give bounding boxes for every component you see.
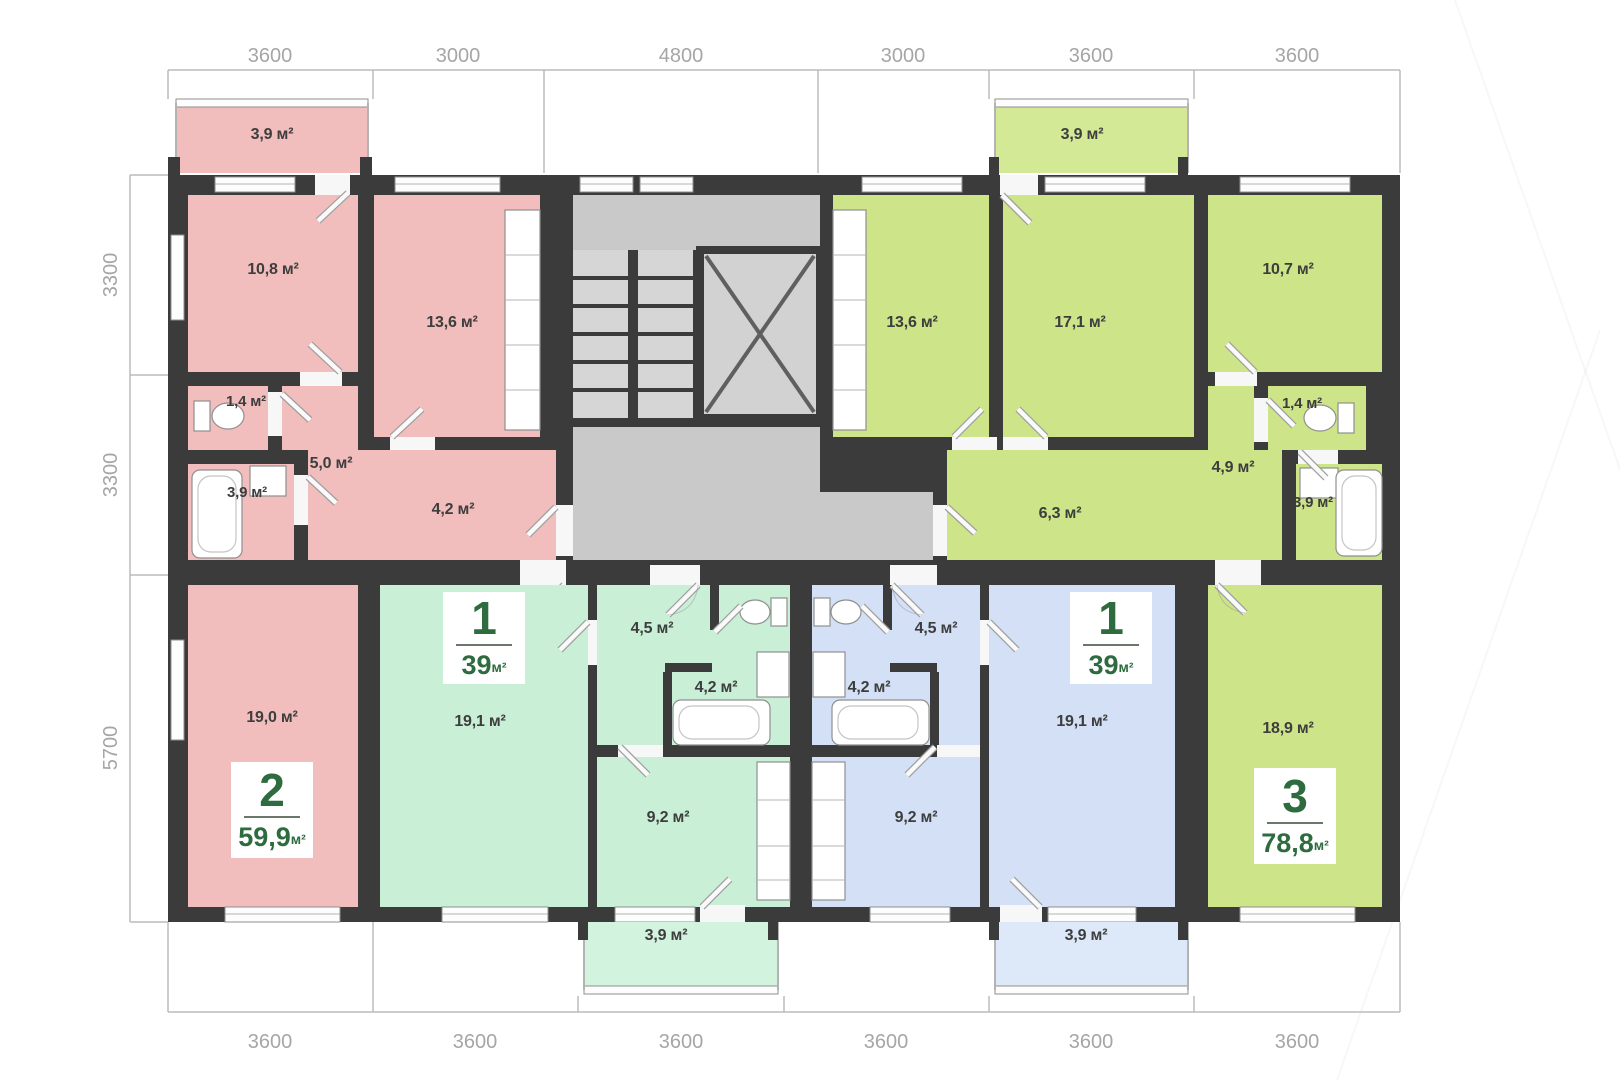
pink-kitchen-counter <box>505 210 540 430</box>
apartment-mint: 4,5 м² 4,2 м² 9,2 м² 19,1 м² 3,9 м² 1 39… <box>380 565 790 994</box>
dim-top-3: 4800 <box>659 45 704 67</box>
pink-balcony-label: 3,9 м² <box>251 126 294 143</box>
dim-bottom-4: 3600 <box>864 1031 909 1053</box>
blue-badge-area: 39 <box>1088 650 1118 680</box>
lime-corridor-label: 6,3 м² <box>1039 505 1082 522</box>
mint-badge-unit: м² <box>492 659 507 675</box>
dim-top-1: 3600 <box>248 45 293 67</box>
mint-apartment-badge: 1 39м² <box>443 592 525 684</box>
blue-badge-number: 1 <box>1098 592 1124 644</box>
pink-room-living <box>188 585 358 907</box>
dim-bottom-1: 3600 <box>248 1031 293 1053</box>
mint-balcony-label: 3,9 м² <box>645 927 688 944</box>
elevator-shaft <box>700 250 820 418</box>
mint-badge-area: 39 <box>461 650 491 680</box>
pink-wc-label: 1,4 м² <box>226 393 266 410</box>
blue-bathroom-label: 4,2 м² <box>848 679 891 696</box>
dim-bottom-5: 3600 <box>1069 1031 1114 1053</box>
blue-apartment-badge: 1 39м² <box>1070 592 1152 684</box>
dim-left-2: 3300 <box>100 453 122 498</box>
dim-bottom-6: 3600 <box>1275 1031 1320 1053</box>
floor-plan-drawing: 3600 3000 4800 3000 3600 3600 3300 3300 … <box>0 0 1620 1080</box>
pink-bedroom-label: 10,8 м² <box>247 261 298 278</box>
mint-toilet <box>740 598 787 626</box>
lime-bathroom-label: 3,9 м² <box>1293 494 1333 511</box>
lime-balcony-label: 3,9 м² <box>1061 126 1104 143</box>
apartment-blue: 4,5 м² 4,2 м² 9,2 м² 19,1 м² 3,9 м² 1 39… <box>812 565 1188 994</box>
blue-hall-label: 4,5 м² <box>915 620 958 637</box>
pink-corridor-label: 4,2 м² <box>432 501 475 518</box>
mint-bathtub <box>673 700 770 745</box>
dim-bottom-3: 3600 <box>659 1031 704 1053</box>
blue-sink <box>813 652 845 697</box>
mint-sink <box>757 652 789 697</box>
lime-bedroom-label: 17,1 м² <box>1054 314 1105 331</box>
pink-room-hall <box>308 386 358 560</box>
blue-cabinet <box>812 762 845 900</box>
floor-plan-page: 3600 3000 4800 3000 3600 3600 3300 3300 … <box>0 0 1620 1080</box>
pink-badge-unit: м² <box>291 831 306 847</box>
pink-living-label: 19,0 м² <box>246 709 297 726</box>
blue-living-label: 19,1 м² <box>1056 713 1107 730</box>
pink-room-bedroom <box>188 195 358 372</box>
blue-balcony-label: 3,9 м² <box>1065 927 1108 944</box>
dim-bottom-2: 3600 <box>453 1031 498 1053</box>
lime-room-hall <box>1208 386 1254 450</box>
dim-top-2: 3000 <box>436 45 481 67</box>
blue-bathtub <box>832 700 929 745</box>
entry-hall-lower <box>573 492 933 560</box>
pink-badge-number: 2 <box>259 764 285 816</box>
mint-badge-number: 1 <box>471 592 497 644</box>
pink-badge-area: 59,9 <box>238 822 291 852</box>
dim-left-1: 3300 <box>100 253 122 298</box>
lime-bedroom2-label: 10,7 м² <box>1262 261 1313 278</box>
blue-kitchen-label: 9,2 м² <box>895 809 938 826</box>
lime-hall-label: 4,9 м² <box>1212 459 1255 476</box>
dim-top-6: 3600 <box>1275 45 1320 67</box>
lime-badge-number: 3 <box>1282 770 1308 822</box>
mint-kitchen-label: 9,2 м² <box>647 809 690 826</box>
mint-hall-label: 4,5 м² <box>631 620 674 637</box>
lime-badge-unit: м² <box>1314 837 1329 853</box>
lime-living-label: 18,9 м² <box>1262 720 1313 737</box>
mint-bathroom-label: 4,2 м² <box>695 679 738 696</box>
pink-bathroom-label: 3,9 м² <box>227 484 267 501</box>
lime-bathtub <box>1336 470 1382 556</box>
blue-badge-unit: м² <box>1119 659 1134 675</box>
lime-kitchen-label: 13,6 м² <box>886 314 937 331</box>
lime-wc-label: 1,4 м² <box>1282 395 1322 412</box>
dim-left-3: 5700 <box>100 726 122 771</box>
lime-apartment-badge: 3 78,8м² <box>1254 768 1336 864</box>
pink-kitchen-label: 13,6 м² <box>426 314 477 331</box>
entry-hall-upper <box>573 427 820 492</box>
mint-living-label: 19,1 м² <box>454 713 505 730</box>
pink-apartment-badge: 2 59,9м² <box>231 762 313 858</box>
pink-hall-label: 5,0 м² <box>310 455 353 472</box>
dim-top-4: 3000 <box>881 45 926 67</box>
lime-badge-area: 78,8 <box>1261 828 1314 858</box>
lime-kitchen-counter <box>833 210 866 430</box>
mint-cabinet <box>757 762 790 900</box>
blue-toilet <box>814 598 861 626</box>
lime-room-bedroom2 <box>1208 195 1382 372</box>
dim-top-5: 3600 <box>1069 45 1114 67</box>
